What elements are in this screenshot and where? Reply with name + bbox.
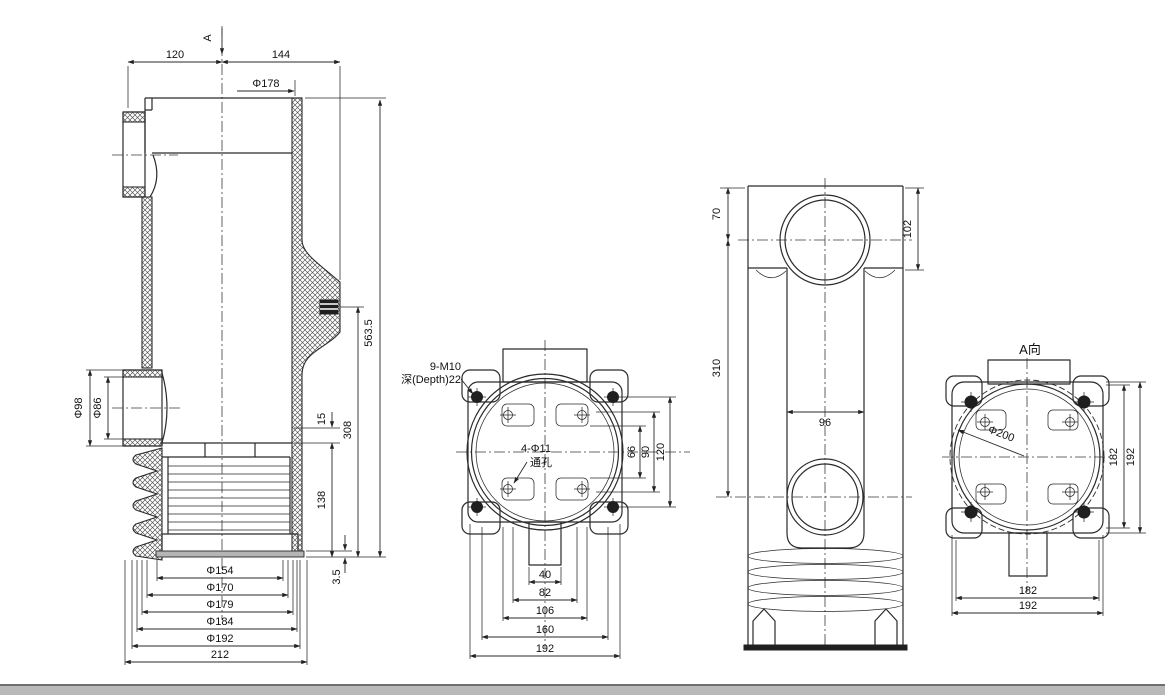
note-tapped-1: 9-M10 xyxy=(430,361,461,373)
dim-184: Φ184 xyxy=(206,616,233,628)
dim-170: Φ170 xyxy=(206,582,233,594)
shed-profile xyxy=(133,448,162,560)
dim-90: 90 xyxy=(640,446,652,458)
dim-15: 15 xyxy=(316,413,328,425)
dim-120b: 120 xyxy=(655,443,667,461)
dim-86: Φ86 xyxy=(92,397,104,418)
dim-192v: 192 xyxy=(1125,448,1137,466)
note-through-2: 通孔 xyxy=(530,456,552,469)
dim-200: Φ200 xyxy=(986,424,1016,445)
dim-563-5: 563.5 xyxy=(363,319,375,347)
section-view: A 120 144 Φ178 563.5 308 15 138 3.5 Φ98 … xyxy=(73,26,386,665)
dim-212: 212 xyxy=(211,649,229,661)
note-through-1: 4-Φ11 xyxy=(521,443,551,455)
dim-182v: 182 xyxy=(1108,448,1120,466)
dim-310: 310 xyxy=(711,359,723,377)
dim-106: 106 xyxy=(536,605,554,617)
view-a: A向 Φ200 xyxy=(942,342,1146,616)
dim-120: 120 xyxy=(166,49,184,61)
dim-160: 160 xyxy=(536,624,554,636)
epoxy-wall xyxy=(292,98,340,551)
window-bottom-edge xyxy=(0,684,1165,695)
bottom-tab xyxy=(1009,533,1047,576)
engineering-drawing: A 120 144 Φ178 563.5 308 15 138 3.5 Φ98 … xyxy=(0,0,1165,695)
drawing-canvas: A 120 144 Φ178 563.5 308 15 138 3.5 Φ98 … xyxy=(0,0,1165,695)
dim-308: 308 xyxy=(342,421,354,439)
dim-192: Φ192 xyxy=(206,633,233,645)
view-a-title: A向 xyxy=(1019,342,1041,357)
flange-view: 9-M10 深(Depth)22 4-Φ11 通孔 66 90 120 40 8… xyxy=(401,340,690,659)
embedded-insert xyxy=(320,300,338,314)
dim-144: 144 xyxy=(272,49,290,61)
dim-138: 138 xyxy=(316,491,328,509)
dim-154: Φ154 xyxy=(206,565,233,577)
dim-98: Φ98 xyxy=(73,397,85,418)
dim-96: 96 xyxy=(819,417,831,429)
dim-192h: 192 xyxy=(1019,600,1037,612)
dim-70: 70 xyxy=(711,208,723,220)
dim-66: 66 xyxy=(626,446,638,458)
note-tapped-2: 深(Depth)22 xyxy=(401,373,461,386)
dim-102: 102 xyxy=(902,220,914,238)
dim-182h: 182 xyxy=(1019,585,1037,597)
dim-3-5: 3.5 xyxy=(331,569,343,584)
dim-192b: 192 xyxy=(536,643,554,655)
side-view: 70 310 102 96 xyxy=(711,178,924,652)
shed-fins xyxy=(748,549,903,612)
dim-40: 40 xyxy=(539,569,551,581)
section-cut-label: A xyxy=(202,34,214,42)
dim-82: 82 xyxy=(539,587,551,599)
dim-179: Φ179 xyxy=(206,599,233,611)
dim-178: Φ178 xyxy=(252,78,279,90)
